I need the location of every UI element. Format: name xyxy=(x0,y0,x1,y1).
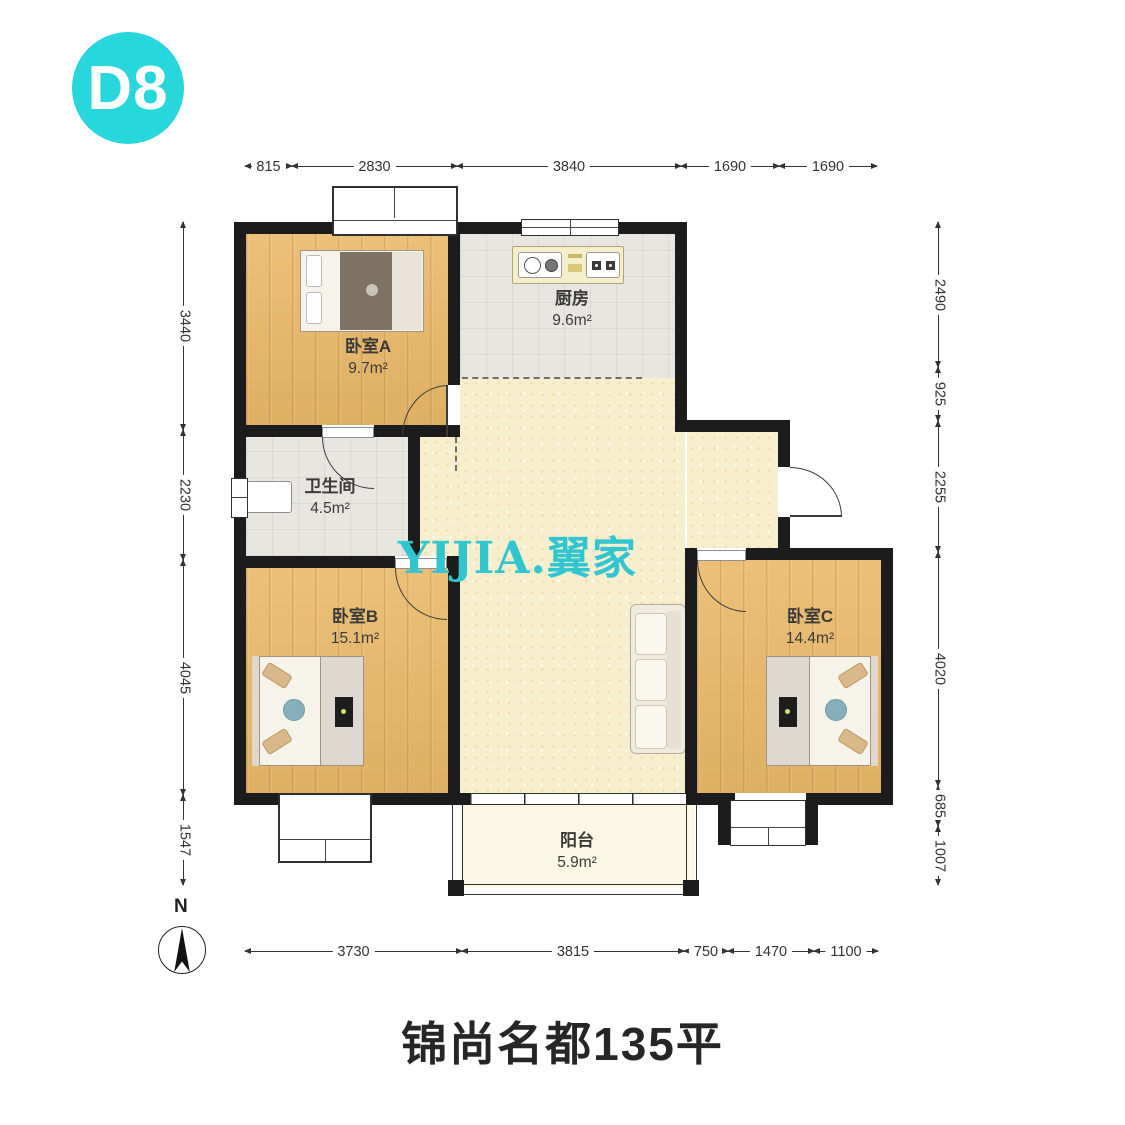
dim-label: 1690 xyxy=(807,159,849,175)
dim-label: 1007 xyxy=(932,835,947,875)
dim-bottom-750: 750 xyxy=(684,951,728,952)
wall-bedroom-b-right xyxy=(448,556,460,805)
dim-right-925: 925 xyxy=(938,367,939,421)
wall-bedroom-b-bottom-left xyxy=(234,793,283,805)
sofa-backrest xyxy=(667,611,681,749)
dim-label: 1100 xyxy=(825,944,866,960)
balcony-label: 阳台 5.9m² xyxy=(507,830,647,874)
bedroom-a-door-leaf xyxy=(446,385,448,437)
stove-burner-icon xyxy=(592,261,601,270)
dim-label: 1690 xyxy=(709,159,751,175)
dim-label: 3815 xyxy=(552,944,594,960)
dim-top-815: 815 xyxy=(245,166,292,167)
dim-label: 3440 xyxy=(177,306,192,346)
bathroom-window xyxy=(231,478,248,518)
kitchen-stove xyxy=(586,252,620,278)
counter-drawer xyxy=(568,264,582,272)
page-title: 锦尚名都135平 xyxy=(0,1008,1125,1074)
bed-headboard xyxy=(252,656,260,766)
balcony-post-right xyxy=(683,880,699,896)
wall-bedroom-c-bottom-right xyxy=(810,793,893,805)
dim-left-3440: 3440 xyxy=(183,222,184,430)
watermark: YIJIA.翼家 xyxy=(398,522,637,586)
sofa-cushion xyxy=(635,659,667,701)
dim-bottom-1470: 1470 xyxy=(728,951,814,952)
dim-top-2830: 2830 xyxy=(292,166,457,167)
wall-bay-c-stub-left xyxy=(718,793,730,845)
sofa-cushion xyxy=(635,705,667,749)
bathroom-label: 卫生间 4.5m² xyxy=(268,476,392,520)
dim-label: 2230 xyxy=(177,475,192,515)
entry-door-arc xyxy=(790,467,842,517)
bedroom-b-dresser xyxy=(320,656,364,766)
room-name: 卧室B xyxy=(285,606,425,629)
sink-drain-icon xyxy=(545,259,558,272)
unit-badge: D8 xyxy=(72,32,184,144)
room-area: 14.4m² xyxy=(740,629,880,650)
dim-label: 685 xyxy=(932,790,947,822)
room-name: 卫生间 xyxy=(268,476,392,499)
dim-label: 3840 xyxy=(548,159,590,175)
wall-bay-c-stub-right xyxy=(806,793,818,845)
dim-label: 925 xyxy=(932,378,947,410)
round-pillow xyxy=(825,699,847,721)
wall-top xyxy=(234,222,687,234)
dim-bottom-3730: 3730 xyxy=(245,951,462,952)
counter-cabinet xyxy=(568,254,582,258)
wall-kitchen-right xyxy=(675,222,687,432)
bed-headboard xyxy=(870,656,878,766)
bed-duvet xyxy=(392,252,422,330)
sink-basin-icon xyxy=(524,257,541,274)
dim-top-1690a: 1690 xyxy=(681,166,779,167)
dim-label: 2830 xyxy=(353,159,395,175)
kitchen-sink xyxy=(518,252,562,278)
kitchen-opening-dashed-line xyxy=(462,377,642,379)
dim-label: 750 xyxy=(689,944,723,960)
bedroom-c-label: 卧室C 14.4m² xyxy=(740,606,880,650)
dim-right-4020: 4020 xyxy=(938,552,939,786)
wall-living-bedroom-c xyxy=(685,548,697,793)
wall-bathroom-bedroom-b-left xyxy=(234,556,395,568)
dim-label: 1470 xyxy=(750,944,792,960)
bedroom-c-dresser xyxy=(766,656,810,766)
tv-icon xyxy=(335,697,353,727)
balcony-rail-left xyxy=(452,805,463,888)
dim-right-685: 685 xyxy=(938,786,939,826)
blanket-detail xyxy=(366,284,378,296)
window-mullion xyxy=(232,497,247,498)
window-mullion xyxy=(570,220,571,235)
round-pillow xyxy=(283,699,305,721)
sofa-cushion xyxy=(635,613,667,655)
dim-label: 4020 xyxy=(932,649,947,689)
room-area: 15.1m² xyxy=(285,629,425,650)
room-name: 厨房 xyxy=(502,288,642,311)
wall-entry-upper xyxy=(778,432,790,467)
balcony-rail-right xyxy=(686,805,697,888)
bed-pillow xyxy=(306,255,322,287)
bedroom-c-bay-window xyxy=(730,800,806,846)
room-name: 卧室C xyxy=(740,606,880,629)
room-area: 4.5m² xyxy=(268,499,392,520)
dim-label: 4045 xyxy=(177,657,192,697)
balcony-sliding-window xyxy=(470,793,686,805)
room-name: 卧室A xyxy=(298,336,438,359)
window-frame-line xyxy=(334,220,456,221)
wall-bedroom-c-top xyxy=(746,548,893,560)
room-area: 9.6m² xyxy=(502,311,642,332)
wall-entry-step xyxy=(675,420,790,432)
wall-balcony-left-chunk xyxy=(460,793,470,805)
tv-power-dot xyxy=(341,709,346,714)
entry-door-leaf xyxy=(790,515,842,517)
wall-bedroom-b-bottom-right xyxy=(368,793,460,805)
balcony-post-left xyxy=(448,880,464,896)
dim-right-2490: 2490 xyxy=(938,222,939,367)
dim-top-3840: 3840 xyxy=(457,166,681,167)
room-area: 5.9m² xyxy=(507,853,647,874)
room-area: 9.7m² xyxy=(298,359,438,380)
window-mullion xyxy=(394,188,395,218)
bedroom-a-bay-window xyxy=(332,186,458,236)
stove-burner-icon xyxy=(606,261,615,270)
dim-left-4045: 4045 xyxy=(183,560,184,795)
dim-right-2255: 2255 xyxy=(938,421,939,552)
dim-right-1007: 1007 xyxy=(938,826,939,885)
dim-left-2230: 2230 xyxy=(183,430,184,560)
wall-balcony-right-chunk xyxy=(686,793,697,805)
dim-bottom-3815: 3815 xyxy=(462,951,684,952)
room-name: 阳台 xyxy=(507,830,647,853)
tv-icon xyxy=(779,697,797,727)
living-room-sofa xyxy=(630,604,686,754)
wall-bedroom-a-bottom-left xyxy=(234,425,322,437)
entry-floor xyxy=(687,432,778,548)
dim-label: 2490 xyxy=(932,274,947,314)
window-mullion xyxy=(325,839,326,861)
bedroom-b-bay-window xyxy=(278,793,372,863)
wall-bedroom-c-right xyxy=(881,548,893,805)
bedroom-b-label: 卧室B 15.1m² xyxy=(285,606,425,650)
kitchen-window xyxy=(521,219,619,236)
dim-label: 3730 xyxy=(332,944,374,960)
dim-label: 1547 xyxy=(177,820,192,860)
bedroom-a-label: 卧室A 9.7m² xyxy=(298,336,438,380)
window-mullion xyxy=(768,827,769,845)
tv-power-dot xyxy=(785,709,790,714)
dim-bottom-1100: 1100 xyxy=(814,951,878,952)
dim-label: 2255 xyxy=(932,466,947,506)
balcony-rail-bottom xyxy=(452,884,695,895)
dim-top-1690b: 1690 xyxy=(779,166,877,167)
hallway-dashed-line xyxy=(455,437,457,471)
wall-bedroom-a-right xyxy=(448,222,460,385)
bed-pillow xyxy=(306,292,322,324)
compass-north-label: N xyxy=(174,896,188,918)
dim-left-1547: 1547 xyxy=(183,795,184,885)
kitchen-label: 厨房 9.6m² xyxy=(502,288,642,332)
dim-label: 815 xyxy=(251,159,285,175)
floor-plan-page: D8 xyxy=(0,0,1125,1125)
